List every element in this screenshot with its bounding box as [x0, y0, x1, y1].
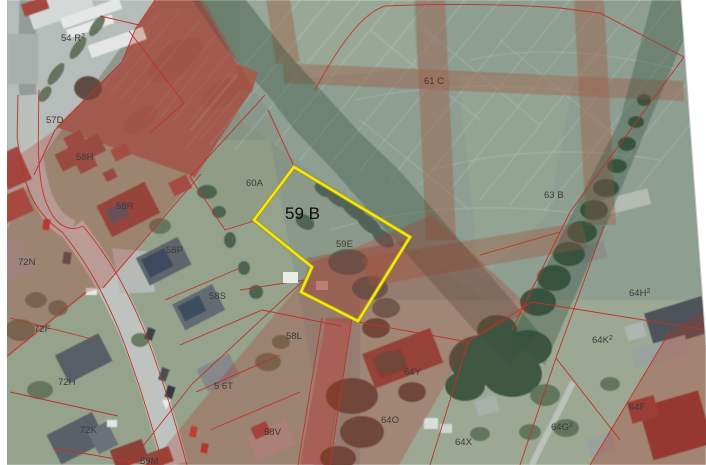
- svg-text:63 B: 63 B: [544, 190, 564, 201]
- svg-text:58S: 58S: [209, 291, 226, 302]
- svg-text:58V: 58V: [264, 427, 282, 438]
- svg-text:72N: 72N: [18, 257, 36, 268]
- svg-text:58P: 58P: [166, 245, 183, 256]
- svg-text:64F: 64F: [629, 402, 646, 413]
- svg-text:58H: 58H: [76, 152, 94, 163]
- svg-text:72H: 72H: [58, 377, 76, 388]
- svg-text:69M: 69M: [140, 456, 159, 465]
- svg-text:59 B: 59 B: [285, 204, 320, 223]
- svg-text:60A: 60A: [246, 178, 264, 189]
- svg-text:64Y: 64Y: [404, 367, 422, 378]
- svg-text:61 C: 61 C: [424, 76, 444, 87]
- svg-text:58R: 58R: [116, 201, 134, 212]
- svg-text:57D: 57D: [46, 115, 64, 126]
- svg-text:64X: 64X: [455, 437, 473, 448]
- svg-text:64O: 64O: [381, 415, 399, 426]
- svg-text:58L: 58L: [286, 331, 302, 342]
- svg-text:59E: 59E: [336, 239, 353, 250]
- svg-text:72K: 72K: [80, 425, 98, 436]
- svg-text:5 6T: 5 6T: [214, 381, 233, 392]
- svg-text:72F: 72F: [34, 324, 51, 335]
